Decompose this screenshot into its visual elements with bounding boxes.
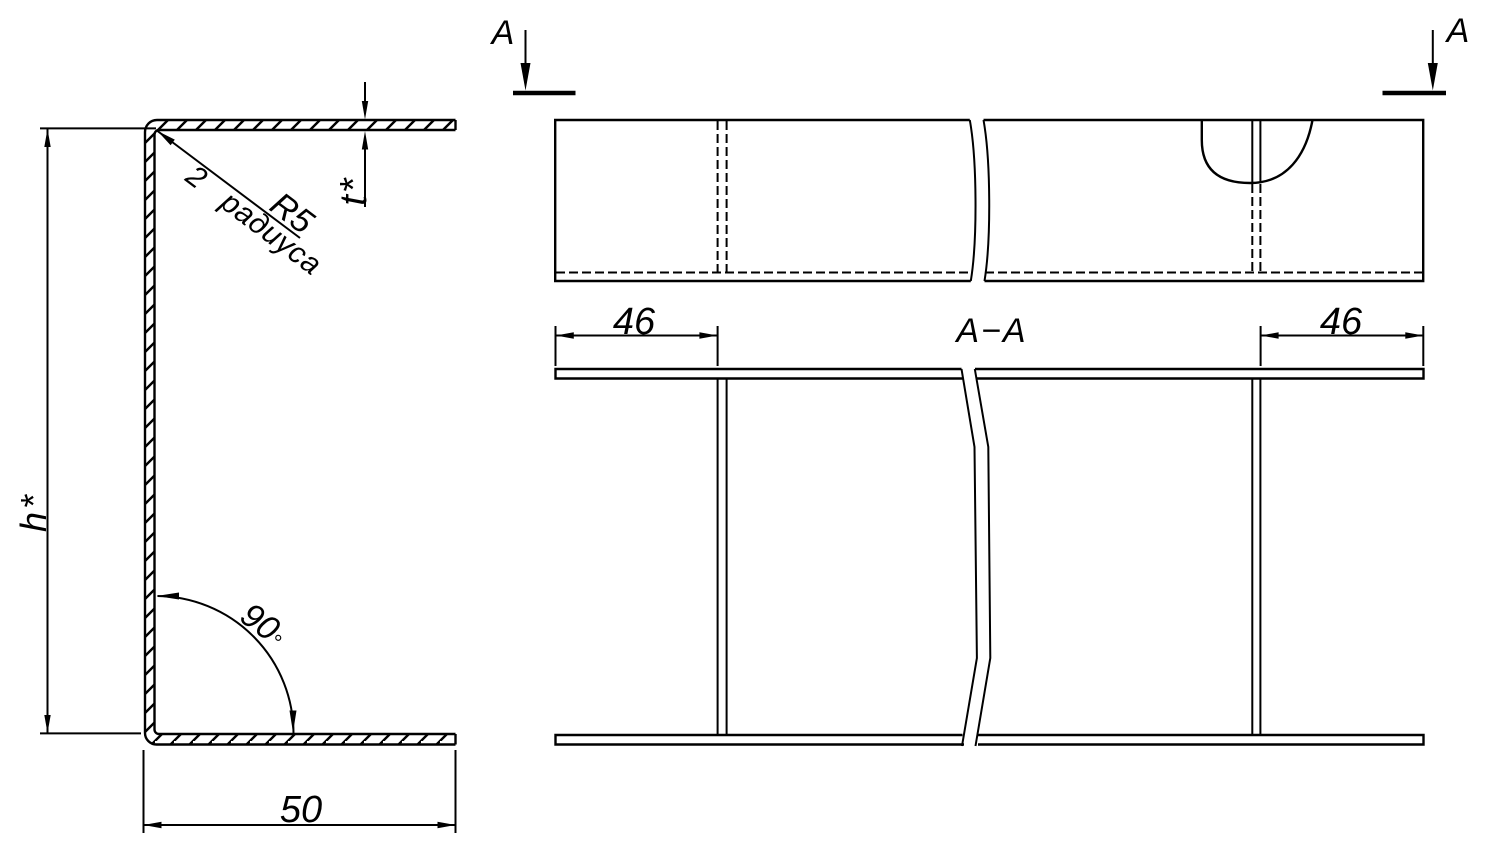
svg-text:A: A [1445, 12, 1470, 50]
svg-text:46: 46 [613, 301, 656, 343]
svg-text:50: 50 [280, 789, 322, 831]
svg-text:A−A: A−A [954, 312, 1027, 350]
svg-text:46: 46 [1320, 301, 1363, 343]
svg-text:h*: h* [13, 492, 54, 532]
svg-text:t*: t* [333, 176, 375, 205]
svg-text:A: A [490, 14, 515, 52]
svg-text:90°: 90° [233, 596, 293, 654]
